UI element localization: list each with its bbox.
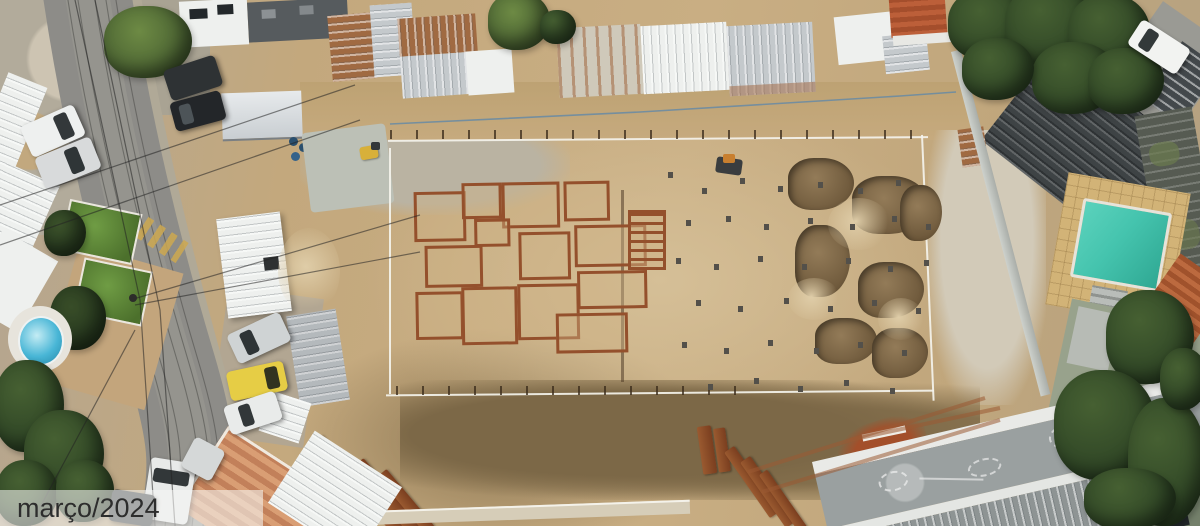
rust-streaks (748, 398, 1000, 492)
power-lines (0, 0, 420, 526)
powerline-layer (0, 0, 1200, 526)
aerial-photo-scene: março/2024 (0, 0, 1200, 526)
water-hose (390, 92, 956, 124)
utility-pole (129, 294, 137, 302)
caption-band: março/2024 (0, 490, 263, 526)
caption-text: março/2024 (0, 490, 263, 526)
